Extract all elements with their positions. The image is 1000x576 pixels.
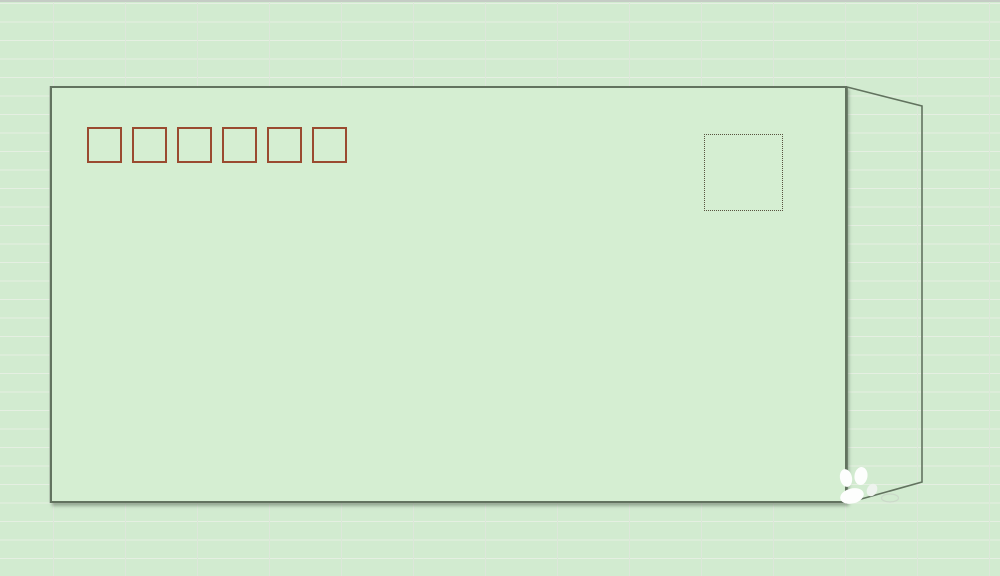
window-top-edge <box>0 0 1000 2</box>
postal-code-row <box>87 127 347 163</box>
flap-outline[interactable] <box>847 87 922 503</box>
paw-print-shapes <box>838 466 898 506</box>
postal-code-box[interactable] <box>132 127 167 163</box>
postal-code-box[interactable] <box>267 127 302 163</box>
stamp-box[interactable] <box>704 134 783 211</box>
postal-code-box[interactable] <box>312 127 347 163</box>
postal-code-box[interactable] <box>177 127 212 163</box>
envelope-flap-shape[interactable] <box>845 84 927 508</box>
postal-code-box[interactable] <box>87 127 122 163</box>
paw-print-icon <box>833 452 908 510</box>
postal-code-box[interactable] <box>222 127 257 163</box>
envelope-body-shape[interactable] <box>50 86 847 503</box>
